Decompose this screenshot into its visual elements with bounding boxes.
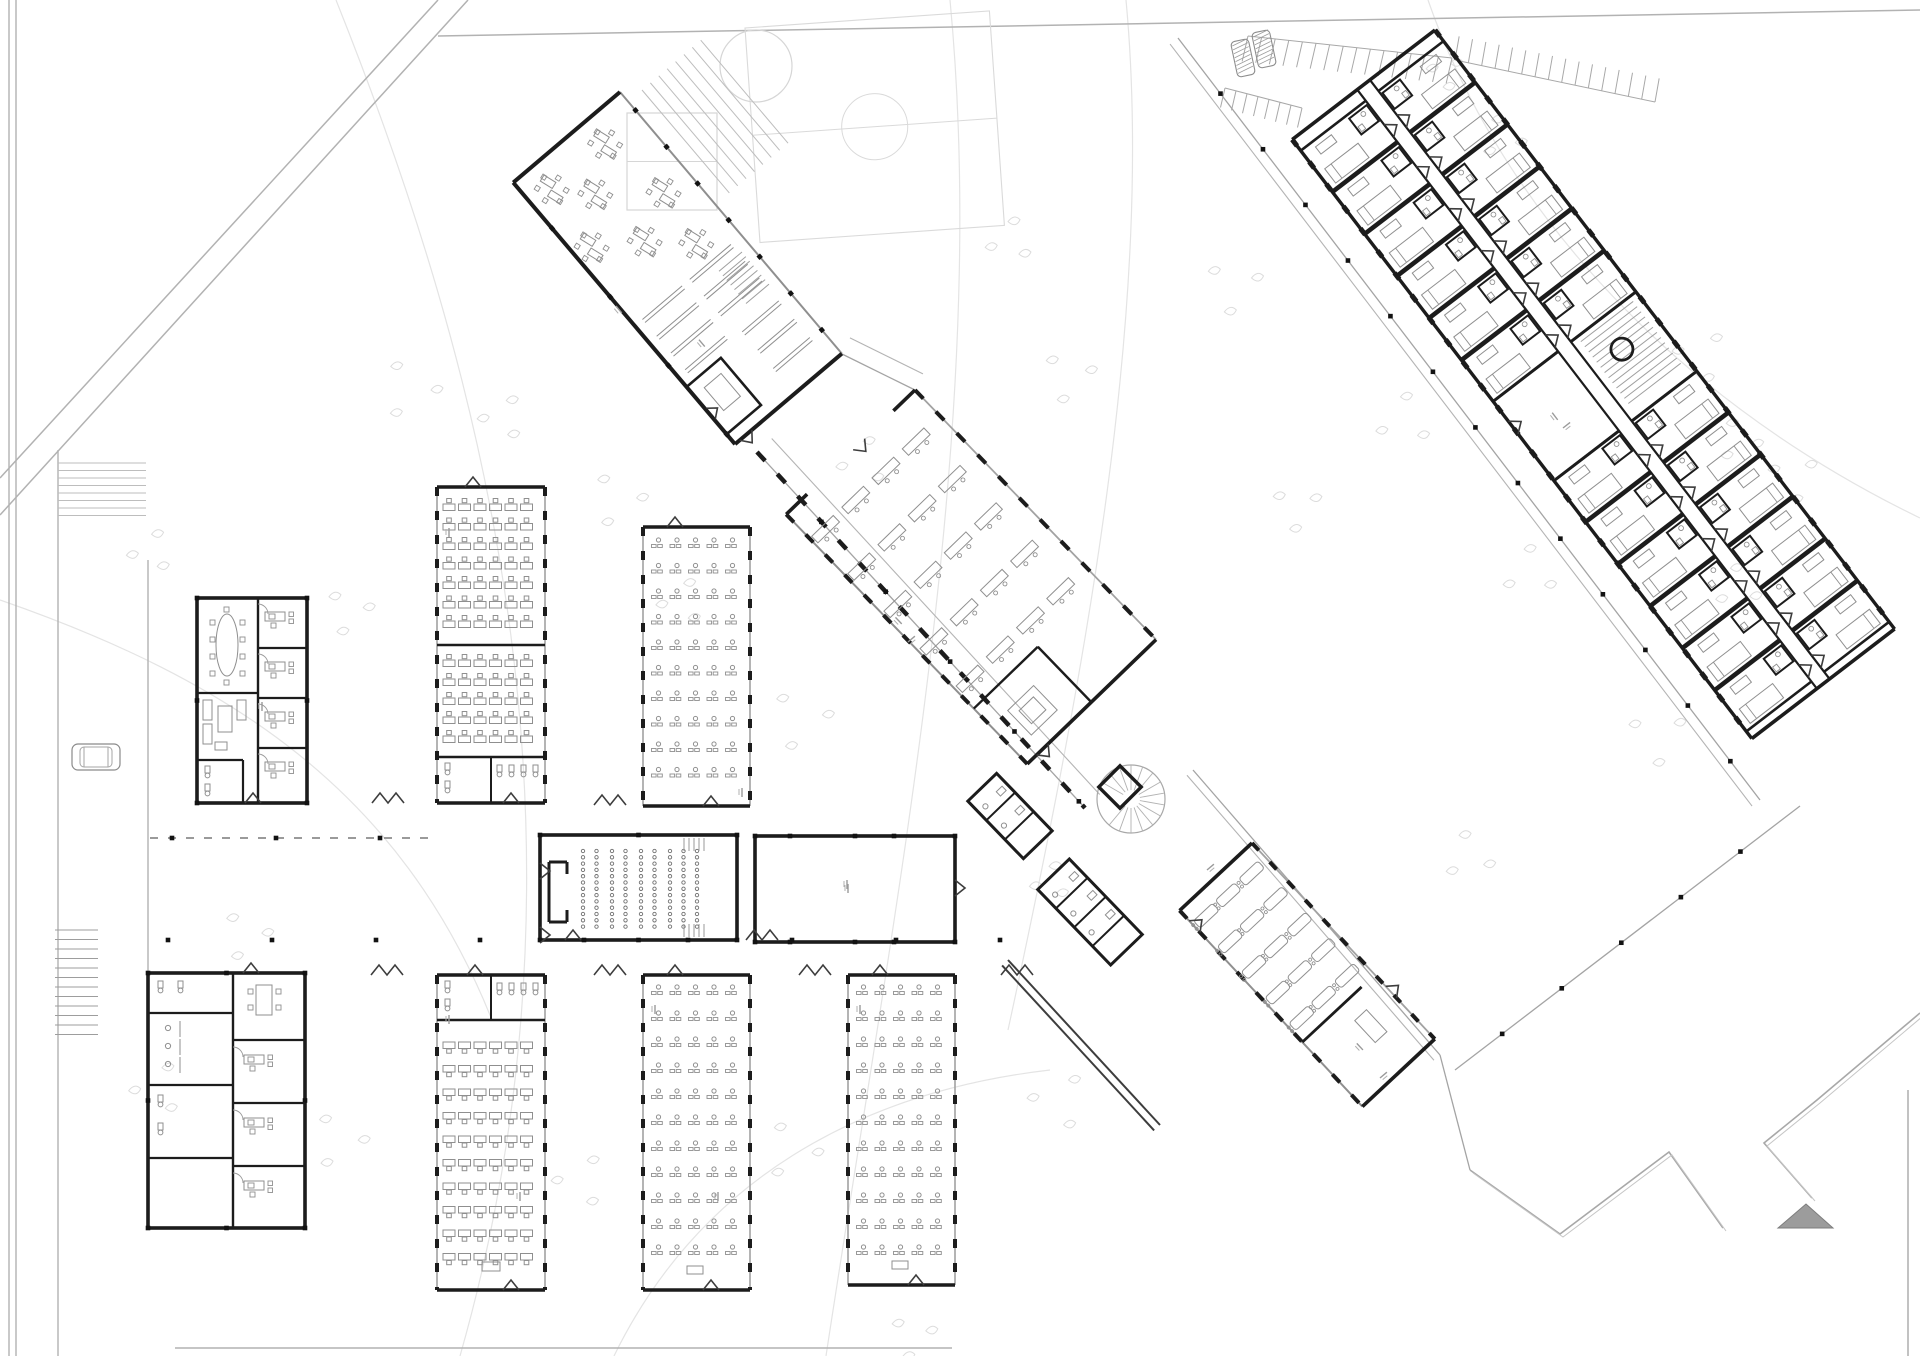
pair-desk	[695, 570, 700, 573]
pair-desk	[652, 1148, 657, 1151]
seat	[682, 856, 685, 859]
seat-dot	[880, 1193, 884, 1197]
service-outer-wall	[968, 773, 1052, 858]
parking-stall-tick	[1365, 49, 1371, 74]
seat-dot	[675, 640, 679, 644]
pair-desk	[881, 1174, 886, 1177]
wc-fixture	[533, 983, 538, 990]
pair-desk	[670, 1252, 675, 1255]
pair-desk	[689, 545, 694, 548]
seat-dot	[936, 573, 942, 579]
seat-dot	[693, 1063, 697, 1067]
pair-desk	[713, 749, 718, 752]
pair-desk	[863, 1044, 868, 1047]
seat-dot	[656, 538, 660, 542]
chair	[509, 538, 514, 542]
pair-desk	[658, 570, 663, 573]
seat-dot	[675, 538, 679, 542]
wc-bowl	[1710, 567, 1717, 574]
computer	[269, 614, 275, 619]
pair-desk	[937, 1018, 942, 1021]
desk	[474, 1207, 486, 1214]
seat-dot	[972, 610, 978, 616]
pair-desk	[732, 621, 737, 624]
pair-desk	[900, 1122, 905, 1125]
seat-dot	[1059, 598, 1065, 604]
workdesk	[914, 561, 942, 588]
workdesk	[878, 524, 906, 551]
chair	[462, 538, 467, 542]
seat	[653, 862, 656, 865]
chair	[599, 180, 605, 186]
seat-dot	[675, 1037, 679, 1041]
chair	[462, 693, 467, 697]
pair-desk	[857, 1096, 862, 1099]
seat-dot	[930, 506, 936, 512]
pair-desk	[658, 992, 663, 995]
seat-dot	[712, 767, 716, 771]
building-outer-wall	[540, 835, 737, 940]
tree-inner	[1674, 718, 1686, 726]
tree-inner	[152, 530, 164, 538]
seat-dot	[917, 1167, 921, 1171]
bench	[707, 264, 748, 299]
ramp-line	[746, 284, 769, 303]
bed	[1486, 353, 1530, 393]
chair	[509, 1143, 514, 1147]
pair-desk	[931, 1096, 936, 1099]
seat-dot	[935, 1245, 939, 1249]
chair	[276, 989, 281, 994]
seat-dot	[860, 574, 866, 580]
desk	[474, 1160, 486, 1167]
parking-stall-tick	[1522, 50, 1526, 74]
pair-desk	[937, 1226, 942, 1229]
tree-inner	[774, 1123, 786, 1131]
pair-desk	[652, 1226, 657, 1229]
seat	[581, 893, 584, 896]
seat-dot	[712, 985, 716, 989]
tree	[227, 914, 279, 960]
module-wall	[1824, 622, 1889, 672]
plan-element	[1210, 868, 1215, 872]
seat-dot	[935, 1219, 939, 1223]
tree-inner	[926, 1326, 938, 1334]
desk	[490, 698, 502, 705]
wc-bowl	[1555, 295, 1562, 302]
chair	[210, 637, 215, 642]
tree-inner	[1208, 267, 1220, 275]
room-label-mark	[857, 1005, 860, 1014]
elevator-shaft	[1099, 766, 1141, 808]
pair-desk	[875, 992, 880, 995]
chair	[524, 674, 529, 678]
tree-inner	[358, 1136, 370, 1144]
building-services-lower	[146, 963, 308, 1230]
chair	[462, 1096, 467, 1100]
stair-tread	[1616, 348, 1668, 388]
desk	[474, 1113, 486, 1120]
door-break-symbol	[746, 930, 778, 940]
pair-desk	[707, 1148, 712, 1151]
chair	[462, 557, 467, 561]
pair-desk	[732, 1044, 737, 1047]
computer	[248, 1183, 254, 1188]
seat-dot	[898, 1063, 902, 1067]
seat-dot	[917, 1089, 921, 1093]
tree-inner	[1418, 431, 1430, 439]
column-dot	[224, 1226, 229, 1231]
pair-desk	[732, 570, 737, 573]
module-wall	[1506, 208, 1571, 258]
chair	[675, 191, 681, 197]
pair-desk	[707, 723, 712, 726]
column-dot	[1473, 425, 1478, 430]
seat-dot	[730, 1011, 734, 1015]
desk	[474, 698, 486, 705]
door-swing	[233, 1110, 243, 1120]
parking-stall-tick	[1575, 62, 1579, 86]
seat-dot	[880, 1115, 884, 1119]
column-dot	[303, 971, 308, 976]
chair	[447, 674, 452, 678]
wc-bowl	[1392, 153, 1399, 160]
pair-desk	[689, 723, 694, 726]
seat	[624, 912, 627, 915]
parking-stall-tick	[1446, 58, 1452, 83]
pair-desk	[652, 1174, 657, 1177]
pair-desk	[707, 749, 712, 752]
pillow-line	[1713, 662, 1724, 676]
pair-desk	[732, 596, 737, 599]
desk	[490, 1113, 502, 1120]
bed	[1422, 269, 1466, 309]
pair-desk	[652, 596, 657, 599]
seat-dot	[917, 1037, 921, 1041]
chair	[493, 518, 498, 522]
seat-dot	[957, 553, 963, 559]
pair-desk	[676, 992, 681, 995]
seat-dot	[693, 1115, 697, 1119]
seat-dot	[675, 716, 679, 720]
desk	[521, 698, 533, 705]
window-wall	[915, 390, 1156, 640]
pair-desk	[658, 647, 663, 650]
chair	[447, 616, 452, 620]
pair-desk	[875, 1096, 880, 1099]
walkway-edge	[850, 338, 923, 374]
seat-dot	[935, 1011, 939, 1015]
column-dot	[819, 520, 824, 525]
parking-stall-tick	[1351, 48, 1357, 73]
pair-desk	[713, 1252, 718, 1255]
desk	[505, 543, 517, 550]
pair-desk	[658, 1070, 663, 1073]
chair	[478, 616, 483, 620]
tree-inner	[1524, 545, 1536, 553]
pair-desk	[713, 1070, 718, 1073]
pair-desk	[726, 698, 731, 701]
wc-fixture	[445, 763, 450, 770]
seat-dot	[675, 1115, 679, 1119]
pillow-line	[1766, 488, 1777, 502]
pillow-line	[1649, 578, 1660, 592]
wc-bowl	[1743, 541, 1750, 548]
pair-desk	[863, 992, 868, 995]
chair	[654, 201, 660, 207]
column-dot	[374, 938, 379, 943]
pair-desk	[658, 1122, 663, 1125]
pair-desk	[894, 1044, 899, 1047]
seat-dot	[712, 716, 716, 720]
pair-desk	[707, 1070, 712, 1073]
pair-desk	[670, 647, 675, 650]
table	[685, 230, 701, 243]
pair-desk	[912, 1122, 917, 1125]
seat-dot	[966, 544, 972, 550]
pair-desk	[863, 1200, 868, 1203]
seat	[610, 900, 613, 903]
pillow-line	[1578, 242, 1589, 256]
seat-dot	[730, 985, 734, 989]
desk	[459, 1066, 471, 1073]
tree-inner	[1046, 356, 1058, 364]
chair	[524, 1190, 529, 1194]
chair	[509, 499, 514, 503]
pair-desk	[918, 1174, 923, 1177]
column-dot	[892, 834, 897, 839]
pair-desk	[732, 1174, 737, 1177]
tree-inner	[157, 562, 169, 570]
site-marker-triangle	[1778, 1204, 1833, 1228]
seat-dot	[693, 1219, 697, 1223]
chair	[289, 669, 294, 674]
bed	[1551, 237, 1595, 277]
desk	[521, 1089, 533, 1096]
seat	[682, 868, 685, 871]
tree-inner	[1805, 460, 1817, 468]
lounger	[1239, 861, 1265, 886]
desk	[459, 679, 471, 686]
desk	[443, 504, 455, 511]
module-wall	[1396, 225, 1461, 275]
pair-desk	[894, 1174, 899, 1177]
computer	[269, 714, 275, 719]
desk	[521, 1160, 533, 1167]
bleacher-line	[684, 54, 771, 157]
wc-fixture	[1105, 909, 1115, 919]
seat-dot	[712, 1011, 716, 1015]
module-wall	[1364, 183, 1429, 233]
parking-stall-tick	[1615, 70, 1619, 94]
pair-desk	[713, 774, 718, 777]
pair-desk	[695, 723, 700, 726]
chair	[462, 674, 467, 678]
desk	[490, 621, 502, 628]
bench	[718, 278, 759, 313]
bed	[1675, 599, 1719, 639]
column-dot	[1218, 91, 1223, 96]
seat-dot	[1029, 628, 1035, 634]
pair-desk	[676, 749, 681, 752]
module-wall	[1365, 185, 1430, 235]
pair-desk	[857, 1200, 862, 1203]
pair-desk	[707, 1226, 712, 1229]
seat-dot	[656, 665, 660, 669]
tree-inner	[1273, 492, 1285, 500]
seat	[610, 925, 613, 928]
seat-dot	[656, 589, 660, 593]
tree-inner	[812, 1148, 824, 1156]
bleacher-line	[667, 69, 754, 172]
desk	[505, 660, 517, 667]
room-label-mark	[1380, 1072, 1389, 1080]
building-workroom-wing	[786, 390, 1163, 771]
desk	[459, 543, 471, 550]
desk	[443, 1207, 455, 1214]
seat	[695, 875, 698, 878]
workdesk	[1011, 540, 1039, 567]
desk	[474, 543, 486, 550]
dot	[1335, 987, 1339, 991]
pair-desk	[918, 1018, 923, 1021]
wc-fixture	[533, 765, 538, 772]
seat	[653, 906, 656, 909]
column-dot	[146, 1226, 151, 1231]
site-layer	[0, 0, 1920, 1356]
end-wall	[893, 390, 915, 411]
pair-desk	[875, 1148, 880, 1151]
pair-desk	[652, 1044, 657, 1047]
boundary-zigzag	[1470, 1152, 1723, 1234]
car-hatch	[1234, 50, 1250, 57]
chair	[708, 242, 714, 248]
pair-desk	[658, 1226, 663, 1229]
wall	[1074, 897, 1106, 928]
pair-desk	[900, 1070, 905, 1073]
seat	[639, 906, 642, 909]
workdesk	[1017, 607, 1045, 634]
tree-inner	[390, 409, 402, 417]
desk	[490, 660, 502, 667]
seat-dot	[693, 716, 697, 720]
column-dot	[195, 596, 200, 601]
seat-dot	[935, 1141, 939, 1145]
seat	[610, 887, 613, 890]
pair-desk	[676, 1200, 681, 1203]
seat	[595, 856, 598, 859]
pair-desk	[732, 698, 737, 701]
bed	[1610, 515, 1654, 555]
desk	[443, 717, 455, 724]
seat-dot	[921, 515, 927, 521]
pillow-line	[1746, 704, 1757, 718]
parking-stall-tick	[1482, 42, 1486, 66]
column-dot	[1679, 895, 1684, 900]
pair-desk	[658, 698, 663, 701]
chair	[250, 1192, 255, 1197]
plan-element	[1550, 415, 1554, 420]
seat	[639, 881, 642, 884]
chair	[240, 637, 245, 642]
seat	[695, 881, 698, 884]
pair-desk	[689, 1252, 694, 1255]
workdesk	[956, 665, 984, 692]
desk	[459, 660, 471, 667]
pair-desk	[732, 1122, 737, 1125]
seat-dot	[693, 985, 697, 989]
chair	[462, 1120, 467, 1124]
desk	[459, 1230, 471, 1237]
pair-desk	[695, 749, 700, 752]
pair-desk	[894, 1148, 899, 1151]
room-label-mark	[446, 528, 449, 537]
seat	[668, 887, 671, 890]
seat-dot	[926, 582, 932, 588]
chair	[268, 1188, 273, 1193]
wc-bowl	[1393, 85, 1400, 92]
pair-desk	[863, 1070, 868, 1073]
building-classrooms-lower	[437, 965, 545, 1290]
module-wall	[1696, 455, 1761, 505]
module-wall	[1585, 471, 1650, 521]
seat-dot	[656, 1011, 660, 1015]
room-label-mark	[697, 340, 705, 349]
dot	[1284, 932, 1288, 936]
desk	[474, 602, 486, 609]
pair-desk	[652, 1122, 657, 1125]
seat-dot	[730, 1141, 734, 1145]
seat	[682, 875, 685, 878]
pair-desk	[713, 570, 718, 573]
pair-desk	[857, 1070, 862, 1073]
car-hatch	[1255, 41, 1271, 48]
chair	[289, 662, 294, 667]
seat	[610, 856, 613, 859]
seat-dot	[675, 1193, 679, 1197]
chair	[493, 674, 498, 678]
pair-desk	[713, 992, 718, 995]
module-wall	[1793, 581, 1858, 631]
chair	[555, 175, 561, 181]
desk	[459, 524, 471, 531]
chair	[447, 1073, 452, 1077]
bed	[1707, 441, 1751, 481]
tree	[1027, 1075, 1110, 1127]
pair-desk	[732, 1200, 737, 1203]
seat-dot	[675, 742, 679, 746]
column-dot	[582, 938, 587, 943]
column-dot	[378, 836, 383, 841]
wc-bowl	[1775, 651, 1782, 658]
seat	[595, 862, 598, 865]
bed	[1675, 399, 1719, 439]
bed	[1454, 111, 1498, 151]
seat	[610, 868, 613, 871]
chair	[478, 693, 483, 697]
column-dot	[753, 834, 758, 839]
chair	[224, 680, 229, 685]
walkways	[757, 38, 1800, 1170]
seat	[581, 919, 584, 922]
seat-dot	[869, 565, 875, 571]
seat-dot	[675, 1167, 679, 1171]
chair	[462, 712, 467, 716]
pair-desk	[689, 570, 694, 573]
pair-desk	[652, 621, 657, 624]
pair-desk	[931, 1018, 936, 1021]
seat-dot	[656, 716, 660, 720]
